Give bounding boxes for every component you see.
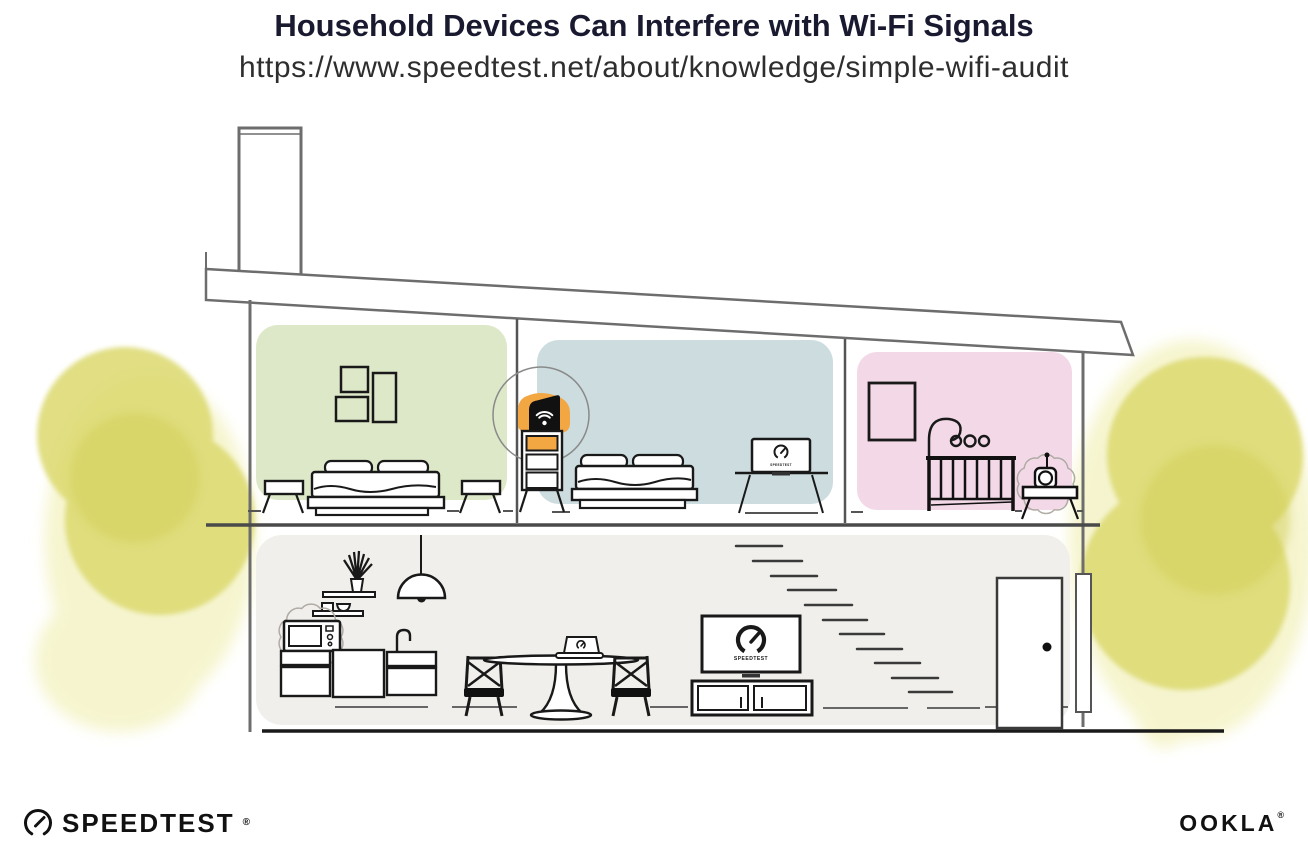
tree-right xyxy=(1069,340,1308,748)
speedtest-gauge-icon xyxy=(22,807,54,839)
tv-speedtest-icon: SPEEDTEST xyxy=(702,616,800,678)
monitor-speedtest-icon: SPEEDTEST xyxy=(752,439,810,476)
downspout xyxy=(1076,574,1091,712)
door-knob xyxy=(1043,643,1052,652)
trademark-symbol: ® xyxy=(243,818,250,828)
svg-text:SPEEDTEST: SPEEDTEST xyxy=(770,463,792,467)
house-illustration: SPEEDTEST xyxy=(0,0,1308,861)
speedtest-logo: SPEEDTEST® xyxy=(22,807,250,839)
trademark-symbol: ® xyxy=(1277,811,1284,820)
bed-icon xyxy=(572,455,697,508)
ookla-logo: OOKLA® xyxy=(1179,810,1284,837)
tree-left xyxy=(35,347,255,732)
media-console-icon xyxy=(692,681,812,715)
svg-text:SPEEDTEST: SPEEDTEST xyxy=(734,656,768,662)
chimney xyxy=(239,128,301,288)
tv-area: SPEEDTEST xyxy=(692,616,812,715)
ookla-wordmark: OOKLA xyxy=(1179,810,1277,837)
microwave-icon xyxy=(284,621,340,651)
front-door-icon xyxy=(997,578,1062,728)
speedtest-wordmark: SPEEDTEST xyxy=(62,808,235,839)
poster: Household Devices Can Interfere with Wi-… xyxy=(0,0,1308,861)
